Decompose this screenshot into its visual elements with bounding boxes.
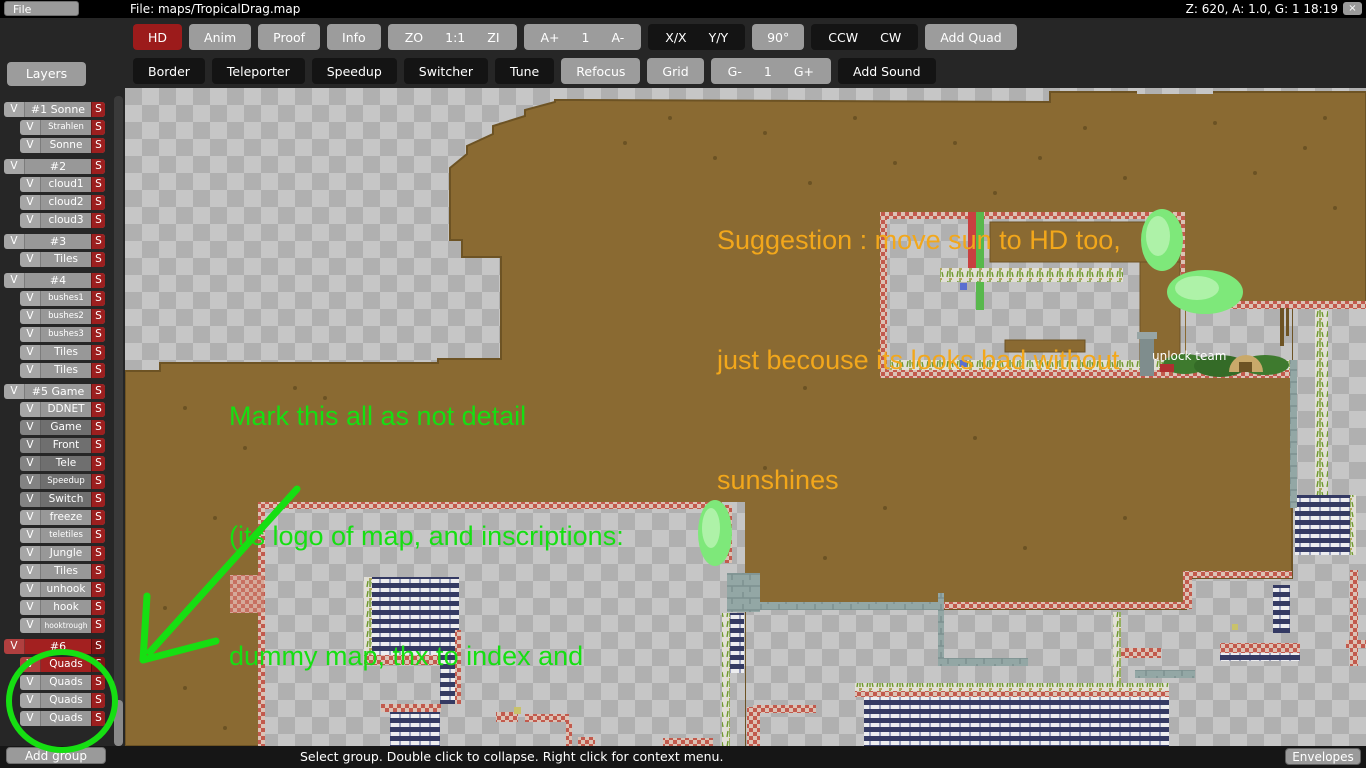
layer-label: Tiles (41, 345, 91, 360)
status-bar: Add group Select group. Double click to … (0, 746, 1366, 768)
visibility-toggle[interactable]: V (20, 213, 41, 228)
detail-toggle[interactable]: S (91, 177, 105, 192)
detail-toggle[interactable]: S (91, 582, 105, 597)
detail-toggle[interactable]: S (91, 492, 105, 507)
layer-row-tele[interactable]: V Tele S (20, 456, 105, 471)
visibility-toggle[interactable]: V (20, 345, 41, 360)
toolbar-button-90[interactable]: 90° (752, 24, 804, 50)
toolbar-row-1: HDAnimProofInfoZO1:1ZIA+1A-X/XY/Y90°CCWC… (133, 24, 1017, 50)
detail-toggle[interactable]: S (91, 273, 105, 288)
layer-row-freeze[interactable]: V freeze S (20, 510, 105, 525)
layer-label: hook (41, 600, 91, 615)
visibility-toggle[interactable]: V (20, 291, 41, 306)
toolbar-button-a[interactable]: A- (600, 30, 635, 45)
layer-row-jungle[interactable]: V Jungle S (20, 546, 105, 561)
layer-label: Switch (41, 492, 91, 507)
layer-row-game[interactable]: V Game S (20, 420, 105, 435)
toolbar-button-y-y[interactable]: Y/Y (698, 30, 739, 45)
layer-label: hooktrough (41, 618, 91, 633)
layer-label: cloud1 (41, 177, 91, 192)
layer-row-tiles[interactable]: V Tiles S (20, 345, 105, 360)
map-canvas[interactable]: unlock team (125, 88, 1366, 746)
detail-toggle[interactable]: S (91, 138, 105, 153)
detail-toggle[interactable]: S (91, 309, 105, 324)
layer-label: #1 Sonne (25, 102, 91, 117)
layer-label: #5 Game (25, 384, 91, 399)
layer-label: Jungle (41, 546, 91, 561)
map-file-title: File: maps/TropicalDrag.map (130, 1, 300, 17)
visibility-toggle[interactable]: V (4, 384, 25, 399)
visibility-toggle[interactable]: V (20, 363, 41, 378)
detail-toggle[interactable]: S (91, 234, 105, 249)
layer-label: bushes3 (41, 327, 91, 342)
visibility-toggle[interactable]: V (20, 402, 41, 417)
detail-toggle[interactable]: S (91, 657, 105, 672)
layer-label: #6 (25, 639, 91, 654)
layers-scrollbar-handle[interactable] (114, 700, 123, 746)
layer-label: teletiles (41, 528, 91, 543)
detail-toggle[interactable]: S (91, 639, 105, 654)
layer-label: Game (41, 420, 91, 435)
detail-toggle[interactable]: S (91, 600, 105, 615)
layer-label: Tiles (41, 252, 91, 267)
layer-row-unhook[interactable]: V unhook S (20, 582, 105, 597)
layer-row-6[interactable]: V #6 S (4, 639, 105, 654)
toolbar-button-cw[interactable]: CW (869, 30, 912, 45)
detail-toggle[interactable]: S (91, 363, 105, 378)
toolbar-group-zo-1-1-zi[interactable]: ZO1:1ZI (388, 24, 517, 50)
layer-label: unhook (41, 582, 91, 597)
unlock-team-label: unlock team (1152, 349, 1226, 363)
visibility-toggle[interactable]: V (20, 582, 41, 597)
toolbar-button-zo[interactable]: ZO (394, 30, 434, 45)
toolbar-button-1[interactable]: 1 (753, 64, 783, 79)
visibility-toggle[interactable]: V (20, 693, 41, 708)
toolbar-button-1-1[interactable]: 1:1 (434, 30, 476, 45)
layer-row-ddnet[interactable]: V DDNET S (20, 402, 105, 417)
visibility-toggle[interactable]: V (4, 234, 25, 249)
visibility-toggle[interactable]: V (20, 177, 41, 192)
visibility-toggle[interactable]: V (20, 438, 41, 453)
visibility-toggle[interactable]: V (20, 456, 41, 471)
visibility-toggle[interactable]: V (20, 252, 41, 267)
close-icon[interactable]: × (1343, 2, 1362, 15)
toolbar-button-proof[interactable]: Proof (258, 24, 320, 50)
layer-row-speedup[interactable]: V Speedup S (20, 474, 105, 489)
toolbar-group-ccw-cw[interactable]: CCWCW (811, 24, 918, 50)
detail-toggle[interactable]: S (91, 291, 105, 306)
detail-toggle[interactable]: S (91, 159, 105, 174)
layer-label: Front (41, 438, 91, 453)
annotation-note-text: Mark this all as not detail (its logo of… (229, 316, 624, 746)
layer-label: Sonne (41, 138, 91, 153)
detail-toggle[interactable]: S (91, 120, 105, 135)
layer-label: cloud2 (41, 195, 91, 210)
detail-toggle[interactable]: S (91, 693, 105, 708)
toolbar-button-border[interactable]: Border (133, 58, 205, 84)
layer-label: Tele (41, 456, 91, 471)
detail-toggle[interactable]: S (91, 102, 105, 117)
visibility-toggle[interactable]: V (4, 639, 25, 654)
layer-row-tiles[interactable]: V Tiles S (20, 252, 105, 267)
envelopes-button[interactable]: Envelopes (1285, 748, 1361, 765)
layer-row-5-game[interactable]: V #5 Game S (4, 384, 105, 399)
visibility-toggle[interactable]: V (20, 309, 41, 324)
layer-row-quads[interactable]: V Quads S (20, 675, 105, 690)
zoom-anim-grid-info: Z: 620, A: 1.0, G: 1 18:19 (1186, 1, 1338, 17)
layer-label: Quads (41, 711, 91, 726)
layers-scrollbar-track[interactable] (114, 96, 123, 744)
toolbar-button-info[interactable]: Info (327, 24, 381, 50)
layer-label: cloud3 (41, 213, 91, 228)
visibility-toggle[interactable]: V (4, 273, 25, 288)
annotation-suggestion-text: Suggestion : move sun to HD too, just be… (717, 140, 1121, 580)
visibility-toggle[interactable]: V (20, 420, 41, 435)
layer-row-tiles[interactable]: V Tiles S (20, 363, 105, 378)
detail-toggle[interactable]: S (91, 711, 105, 726)
toolbar-button-ccw[interactable]: CCW (817, 30, 869, 45)
layer-row-teletiles[interactable]: V teletiles S (20, 528, 105, 543)
layer-row-quads[interactable]: V Quads S (20, 657, 105, 672)
visibility-toggle[interactable]: V (20, 474, 41, 489)
detail-toggle[interactable]: S (91, 675, 105, 690)
toolbar-group-a-1-a[interactable]: A+1A- (524, 24, 642, 50)
layer-label: Speedup (41, 474, 91, 489)
layer-row-tiles[interactable]: V Tiles S (20, 564, 105, 579)
file-menu-button[interactable]: File (4, 1, 79, 16)
layer-row-hooktrough[interactable]: V hooktrough S (20, 618, 105, 633)
visibility-toggle[interactable]: V (20, 675, 41, 690)
layer-row-3[interactable]: V #3 S (4, 234, 105, 249)
visibility-toggle[interactable]: V (4, 102, 25, 117)
layer-row-2[interactable]: V #2 S (4, 159, 105, 174)
detail-toggle[interactable]: S (91, 546, 105, 561)
layers-panel-button[interactable]: Layers (7, 62, 86, 86)
layer-label: Tiles (41, 564, 91, 579)
editor-window: unlock team (0, 0, 1366, 768)
layer-row-sonne[interactable]: V Sonne S (20, 138, 105, 153)
toolbar-button-a[interactable]: A+ (530, 30, 571, 45)
visibility-toggle[interactable]: V (20, 618, 41, 633)
toolbar-group-g-1-g[interactable]: G-1G+ (711, 58, 831, 84)
layer-label: #2 (25, 159, 91, 174)
layer-row-quads[interactable]: V Quads S (20, 693, 105, 708)
layer-row-cloud2[interactable]: V cloud2 S (20, 195, 105, 210)
layer-row-1-sonne[interactable]: V #1 Sonne S (4, 102, 105, 117)
layer-label: #4 (25, 273, 91, 288)
layer-label: Quads (41, 675, 91, 690)
layer-row-bushes2[interactable]: V bushes2 S (20, 309, 105, 324)
layer-row-cloud3[interactable]: V cloud3 S (20, 213, 105, 228)
layer-label: Quads (41, 693, 91, 708)
layers-list: V #1 Sonne S V Strahlen S V Sonne S V #2… (4, 96, 105, 729)
layer-row-strahlen[interactable]: V Strahlen S (20, 120, 105, 135)
toolbar-button-x-x[interactable]: X/X (654, 30, 697, 45)
visibility-toggle[interactable]: V (4, 159, 25, 174)
toolbar-button-refocus[interactable]: Refocus (561, 58, 640, 84)
layer-row-4[interactable]: V #4 S (4, 273, 105, 288)
layer-row-hook[interactable]: V hook S (20, 600, 105, 615)
visibility-toggle[interactable]: V (20, 120, 41, 135)
layer-row-cloud1[interactable]: V cloud1 S (20, 177, 105, 192)
layer-label: freeze (41, 510, 91, 525)
status-hint-text: Select group. Double click to collapse. … (300, 748, 723, 766)
visibility-toggle[interactable]: V (20, 138, 41, 153)
toolbar-button-teleporter[interactable]: Teleporter (212, 58, 305, 84)
layer-label: bushes2 (41, 309, 91, 324)
visibility-toggle[interactable]: V (20, 546, 41, 561)
visibility-toggle[interactable]: V (20, 195, 41, 210)
toolbar-button-switcher[interactable]: Switcher (404, 58, 488, 84)
visibility-toggle[interactable]: V (20, 657, 41, 672)
detail-toggle[interactable]: S (91, 345, 105, 360)
visibility-toggle[interactable]: V (20, 711, 41, 726)
detail-toggle[interactable]: S (91, 456, 105, 471)
toolbar-row-2: BorderTeleporterSpeedupSwitcherTuneRefoc… (133, 58, 936, 84)
detail-toggle[interactable]: S (91, 474, 105, 489)
toolbar-button-hd[interactable]: HD (133, 24, 182, 50)
visibility-toggle[interactable]: V (20, 327, 41, 342)
detail-toggle[interactable]: S (91, 564, 105, 579)
layer-label: Quads (41, 657, 91, 672)
visibility-toggle[interactable]: V (20, 600, 41, 615)
toolbar-button-zi[interactable]: ZI (476, 30, 510, 45)
toolbar-button-tune[interactable]: Tune (495, 58, 554, 84)
add-group-button[interactable]: Add group (6, 747, 106, 764)
detail-toggle[interactable]: S (91, 510, 105, 525)
visibility-toggle[interactable]: V (20, 528, 41, 543)
layer-label: #3 (25, 234, 91, 249)
layer-label: Tiles (41, 363, 91, 378)
visibility-toggle[interactable]: V (20, 564, 41, 579)
detail-toggle[interactable]: S (91, 402, 105, 417)
toolbar-button-add-sound[interactable]: Add Sound (838, 58, 936, 84)
toolbar-group-x-x-y-y[interactable]: X/XY/Y (648, 24, 745, 50)
toolbar-button-1[interactable]: 1 (571, 30, 601, 45)
layer-row-bushes3[interactable]: V bushes3 S (20, 327, 105, 342)
detail-toggle[interactable]: S (91, 528, 105, 543)
detail-toggle[interactable]: S (91, 327, 105, 342)
detail-toggle[interactable]: S (91, 252, 105, 267)
detail-toggle[interactable]: S (91, 195, 105, 210)
layer-label: bushes1 (41, 291, 91, 306)
layer-label: Strahlen (41, 120, 91, 135)
layer-row-quads[interactable]: V Quads S (20, 711, 105, 726)
layer-row-switch[interactable]: V Switch S (20, 492, 105, 507)
layer-label: DDNET (41, 402, 91, 417)
toolbar-button-add-quad[interactable]: Add Quad (925, 24, 1017, 50)
visibility-toggle[interactable]: V (20, 510, 41, 525)
toolbar-button-g[interactable]: G- (717, 64, 753, 79)
toolbar-button-speedup[interactable]: Speedup (312, 58, 397, 84)
toolbar-button-grid[interactable]: Grid (647, 58, 703, 84)
detail-toggle[interactable]: S (91, 618, 105, 633)
detail-toggle[interactable]: S (91, 384, 105, 399)
detail-toggle[interactable]: S (91, 213, 105, 228)
title-bar: File File: maps/TropicalDrag.map Z: 620,… (0, 0, 1366, 18)
layer-row-bushes1[interactable]: V bushes1 S (20, 291, 105, 306)
visibility-toggle[interactable]: V (20, 492, 41, 507)
toolbar-button-g[interactable]: G+ (783, 64, 825, 79)
toolbar-button-anim[interactable]: Anim (189, 24, 251, 50)
detail-toggle[interactable]: S (91, 438, 105, 453)
detail-toggle[interactable]: S (91, 420, 105, 435)
layer-row-front[interactable]: V Front S (20, 438, 105, 453)
